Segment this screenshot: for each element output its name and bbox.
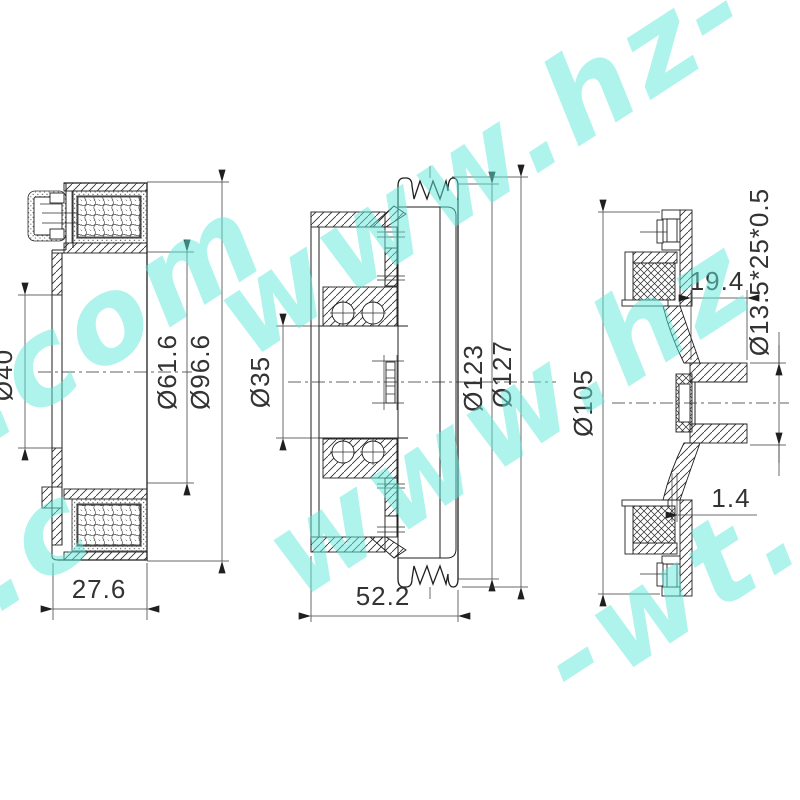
clutch-assembly-drawing: Ø40 Ø61.6 Ø96.6 27.6 xyxy=(0,0,800,800)
watermark-fragment: t.c xyxy=(0,453,119,672)
hub-web-bottom xyxy=(663,443,700,500)
boss-wall-bottom xyxy=(690,424,747,443)
watermark-fragment: -wt. xyxy=(515,458,800,728)
watermark: t.com www.hz- www.hz -wt. t.c xyxy=(0,0,800,728)
hub-spline-detail xyxy=(372,355,404,410)
engineering-drawing-page: Ø40 Ø61.6 Ø96.6 27.6 xyxy=(0,0,800,800)
yoke-hatch-top xyxy=(64,183,147,191)
yoke-hatch-over-coil xyxy=(64,489,147,499)
ring-lip-bottom xyxy=(622,500,668,506)
connector-tab-top xyxy=(50,193,64,203)
connector-tab-bottom xyxy=(50,229,64,239)
